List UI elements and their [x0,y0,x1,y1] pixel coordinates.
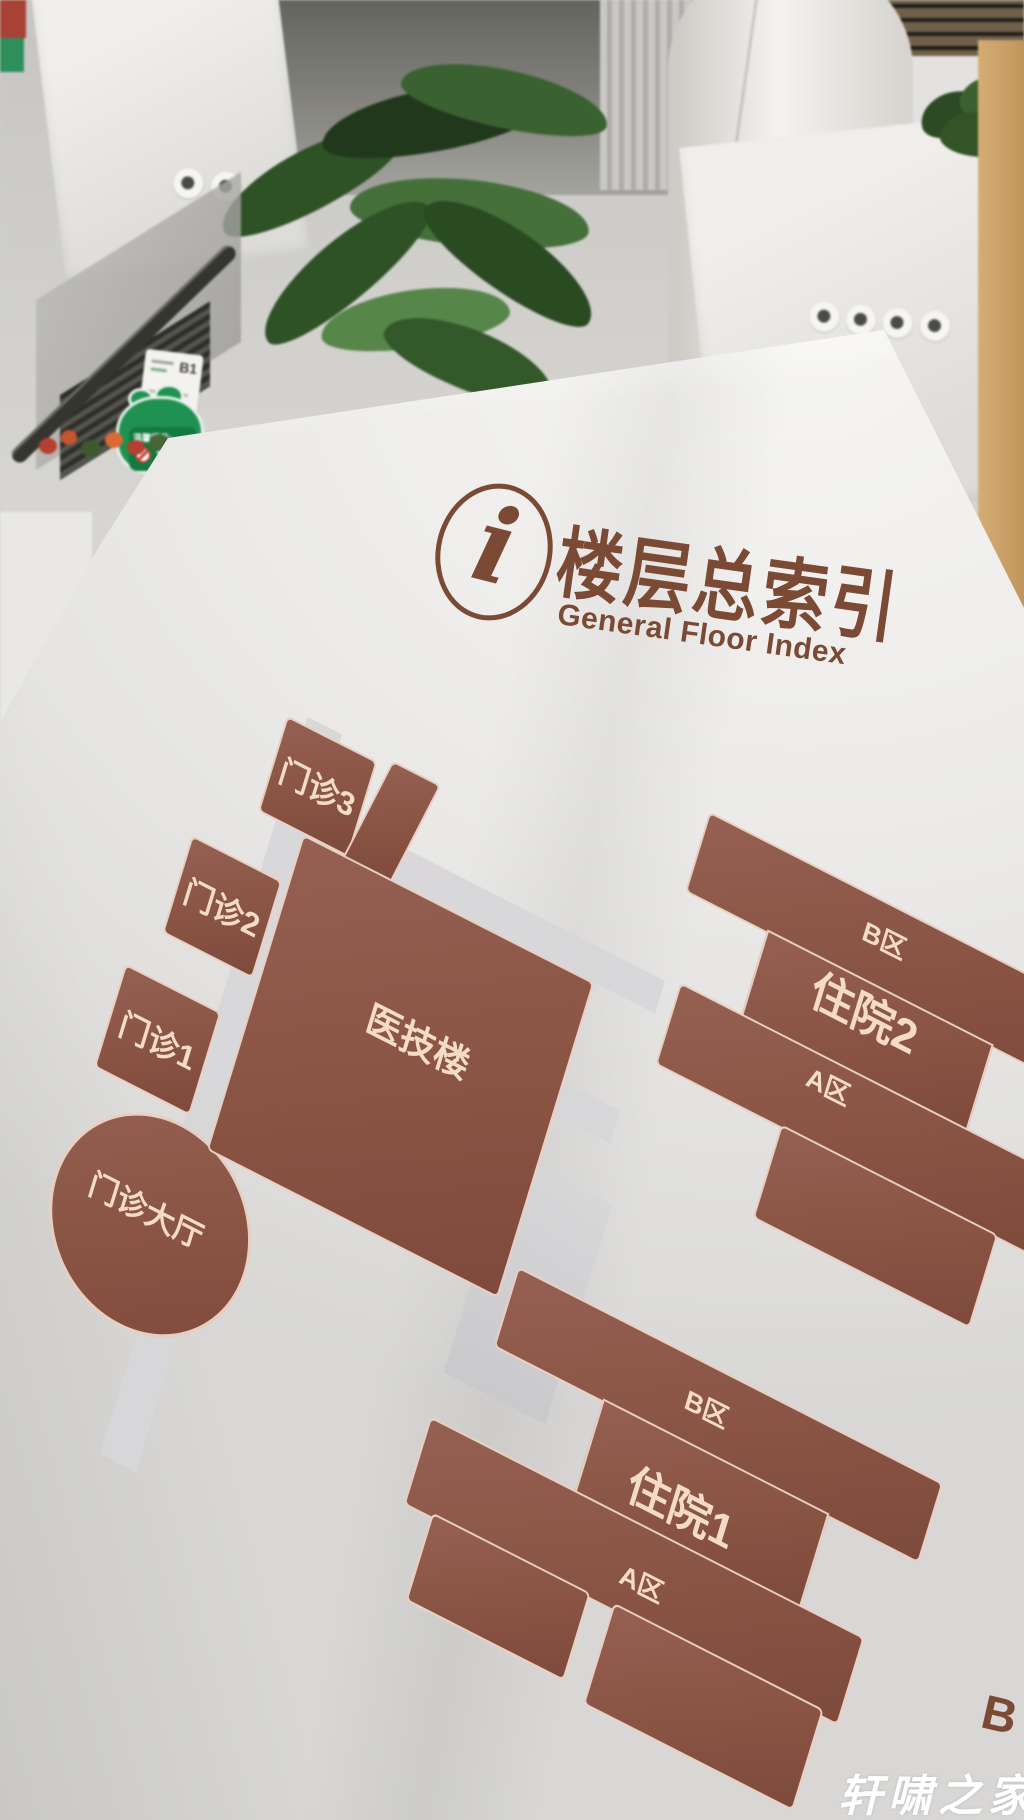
block-label: 门诊1 [114,999,201,1081]
green-wall-sign [0,38,24,72]
corner-letter-b: B [976,1685,1022,1746]
block-label: 门诊2 [179,866,266,948]
vent-hole-icon [845,303,878,336]
b1-floor-label: B1 [178,359,198,377]
info-icon-glyph: i [464,491,528,601]
info-icon: i [421,471,567,633]
sign-line [151,367,167,372]
sign-line [152,359,174,365]
vent-hole-icon [919,310,952,343]
red-wall-sign [0,0,26,38]
photo-hospital-lobby: B1 温馨提示: [0,0,1024,1820]
corridor [100,1320,177,1472]
block-label: 门诊大厅 [84,1158,209,1258]
block-label: 门诊3 [274,746,361,828]
corridor [552,1081,620,1143]
watermark: 轩啸之家 [838,1760,1024,1820]
vent-hole-icon [808,300,841,333]
block-label: 医技楼 [361,988,477,1091]
